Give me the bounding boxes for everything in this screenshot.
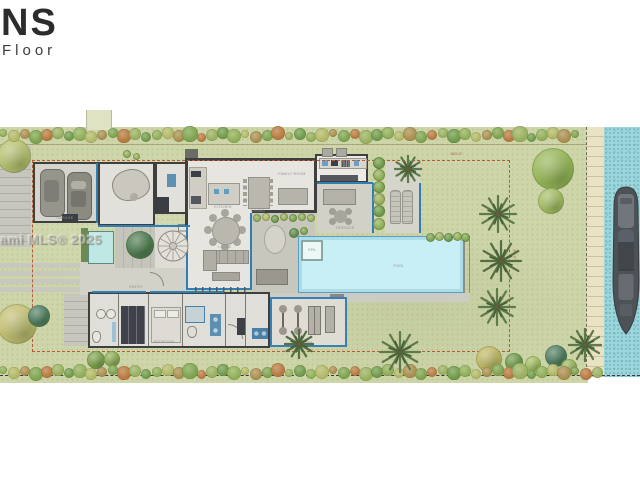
mls-watermark: ami MLS® 2025: [0, 232, 102, 247]
spiral-staircase: [156, 229, 190, 263]
spa: [301, 240, 323, 261]
property-line-south: [0, 375, 640, 376]
hedge-baseline: [0, 144, 586, 145]
floor-label: Floor: [2, 42, 56, 59]
planter-1: [322, 148, 333, 157]
floor-plan-page: NS Floor: [0, 0, 640, 480]
boat: [609, 186, 640, 336]
roof-planter: [185, 149, 198, 158]
street-entry-stub: [86, 110, 112, 130]
seawall-dock: [586, 127, 606, 377]
planter-2: [336, 148, 347, 157]
logo-text-fragment: NS: [1, 2, 58, 45]
pool-deck-east-edge: [464, 236, 470, 293]
